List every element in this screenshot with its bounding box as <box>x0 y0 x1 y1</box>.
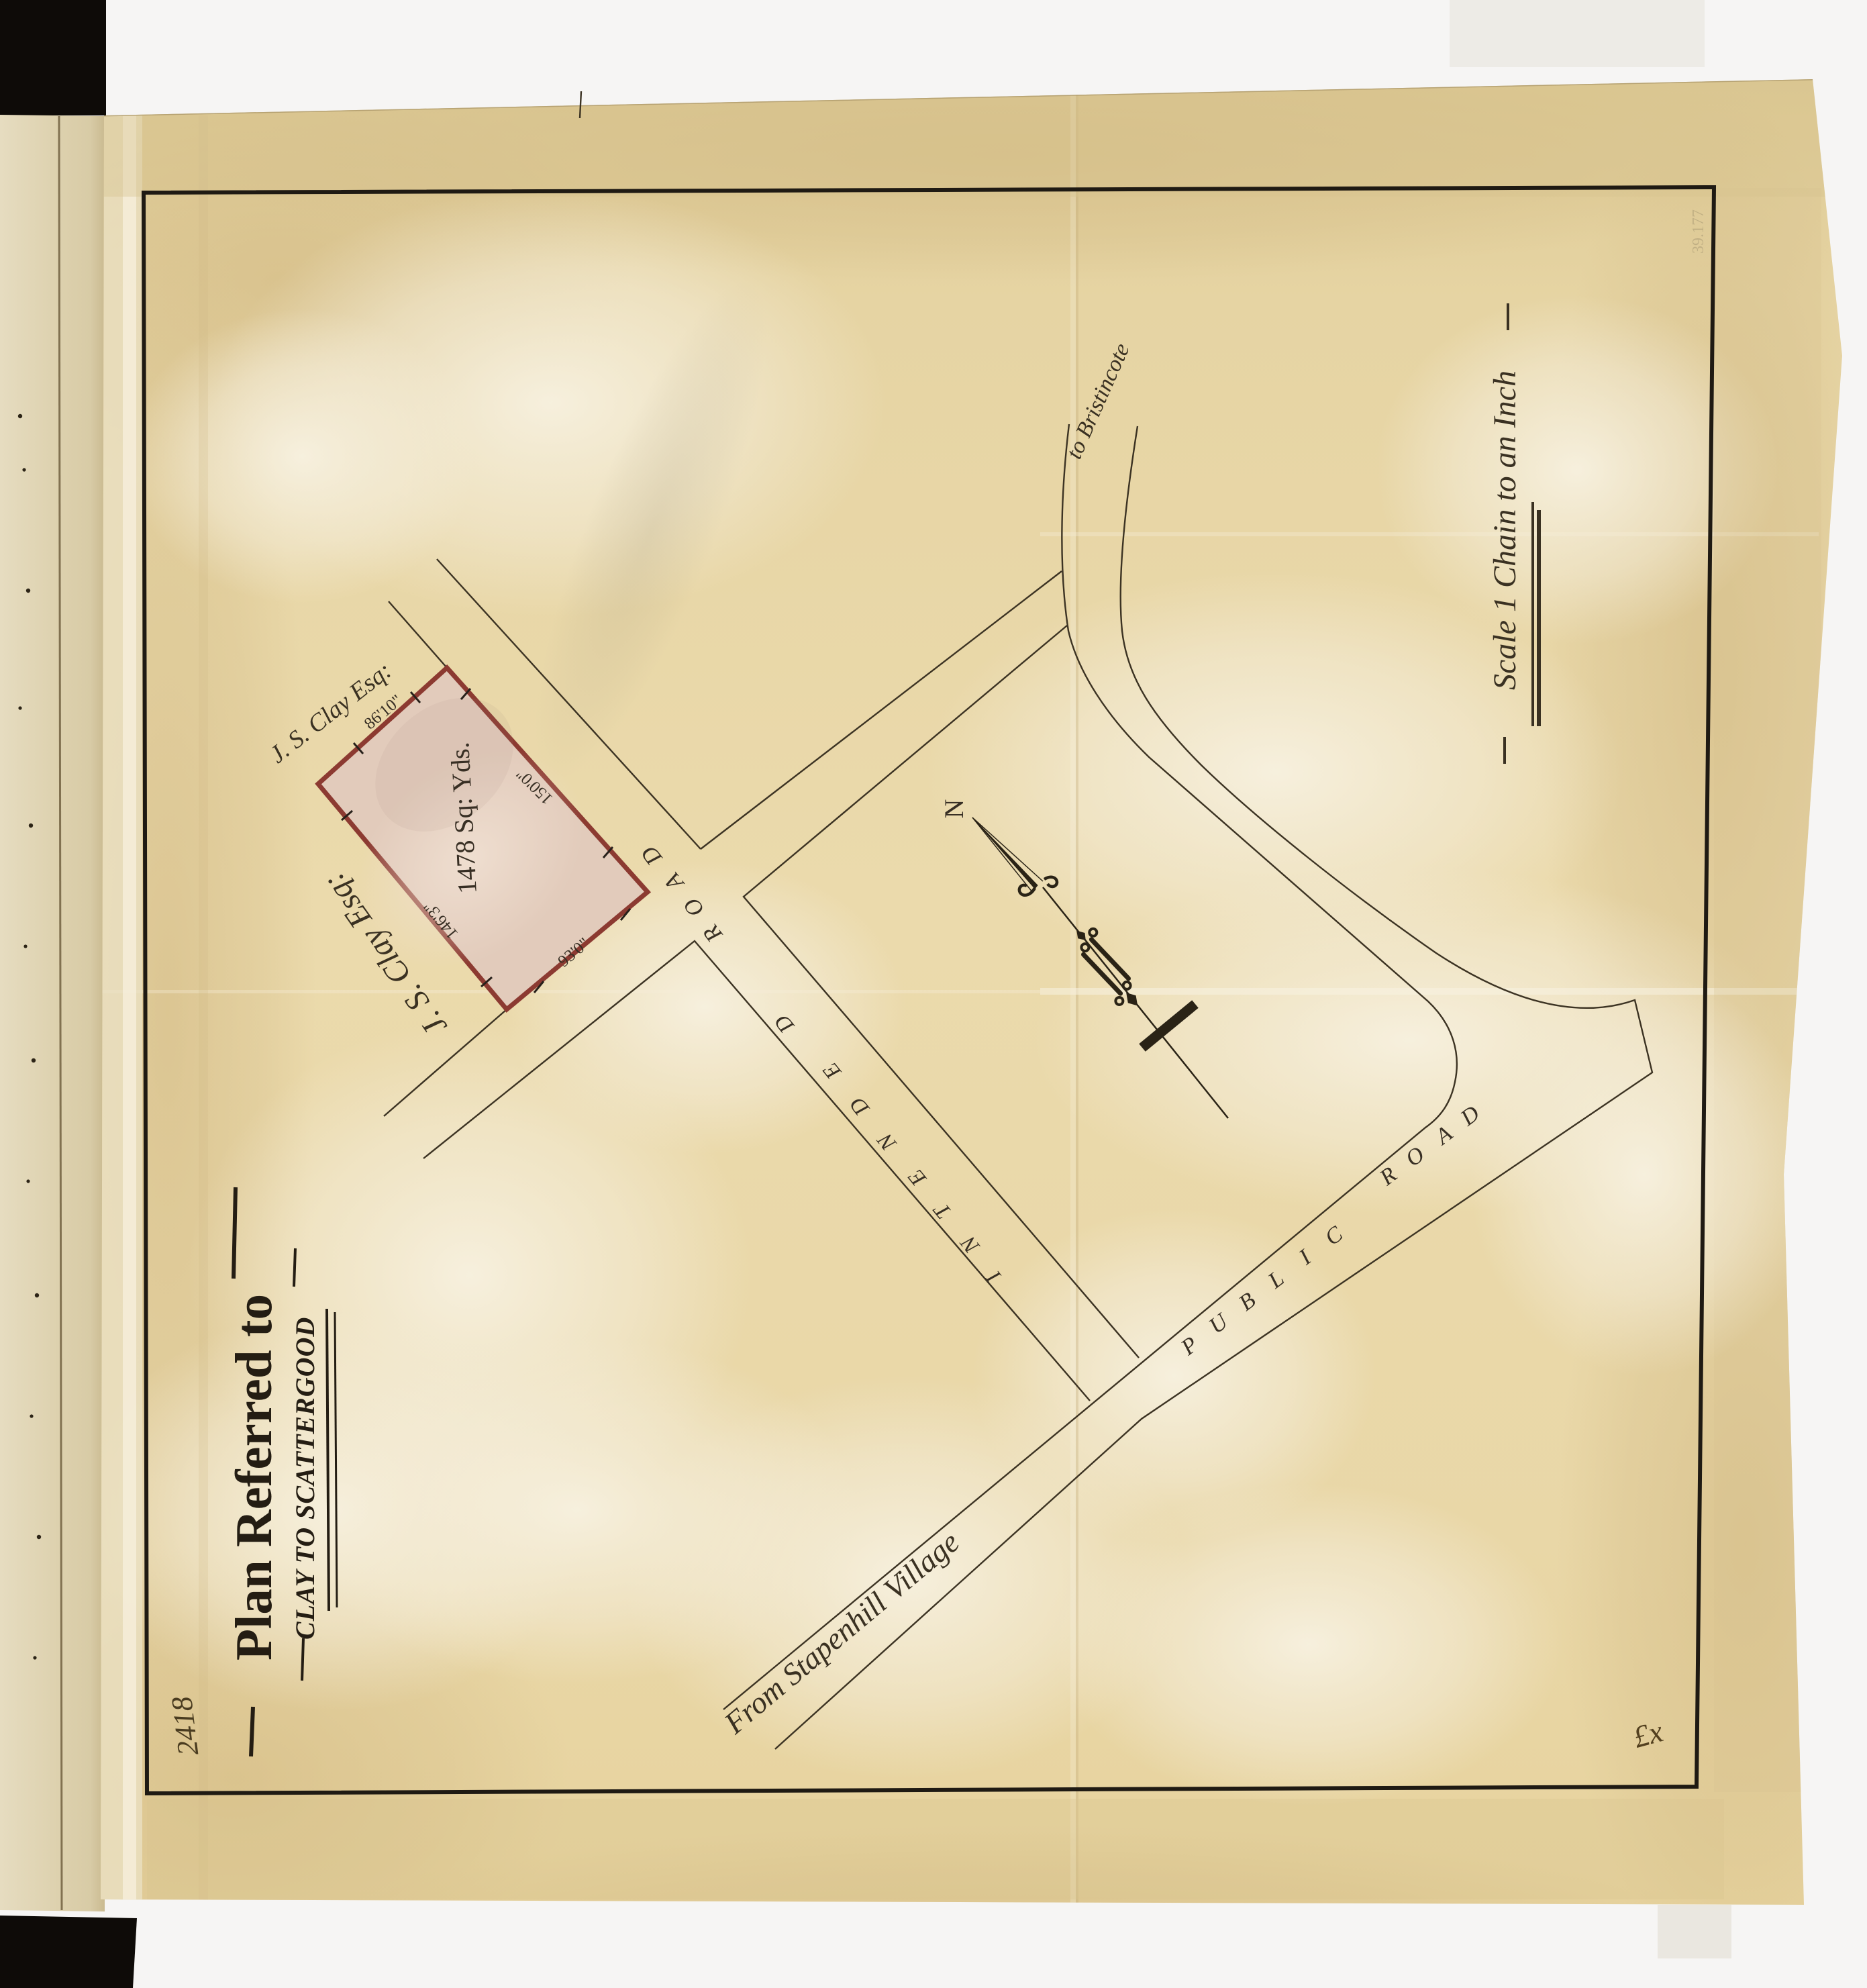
svg-text:Scale 1 Chain to an Inch: Scale 1 Chain to an Inch <box>1487 370 1523 690</box>
svg-text:Plan Referred to: Plan Referred to <box>225 1294 283 1660</box>
svg-text:39.177: 39.177 <box>1690 209 1707 254</box>
svg-text:CLAY TO SCATTERGOOD: CLAY TO SCATTERGOOD <box>290 1317 320 1640</box>
svg-text:N: N <box>939 799 969 819</box>
